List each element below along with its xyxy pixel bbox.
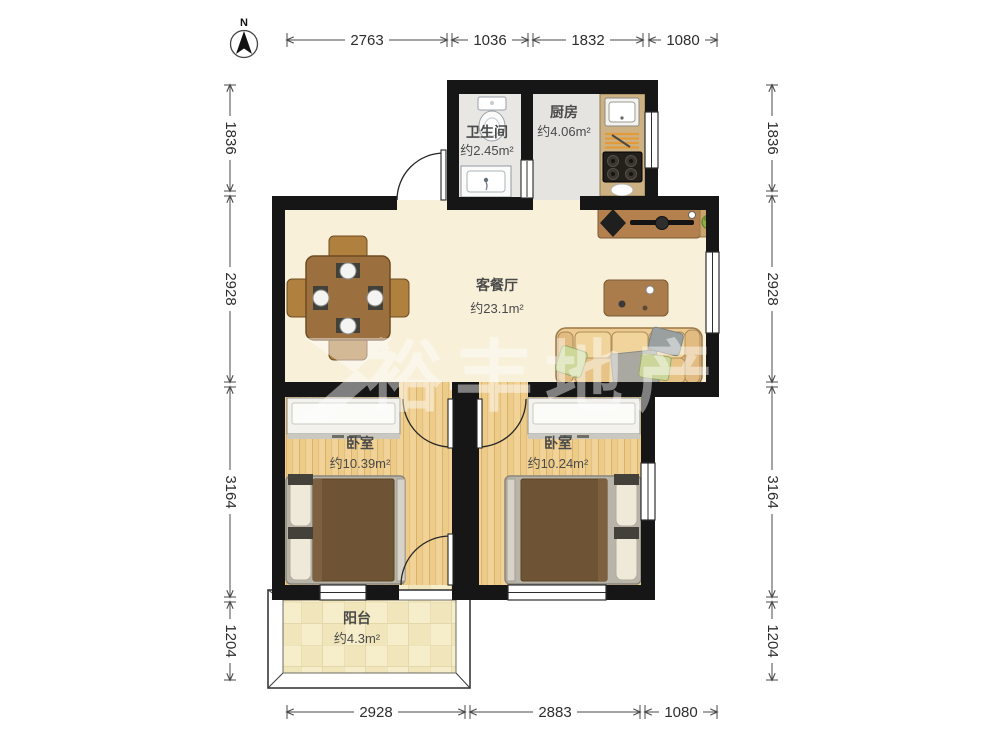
bedroom-right-side-window (641, 463, 655, 520)
dim-top-1: 1036 (452, 32, 528, 49)
living-label: 客餐厅 (475, 277, 518, 293)
burner-center (629, 172, 633, 176)
north-label: N (240, 17, 248, 29)
kitchen-window (645, 112, 658, 168)
svg-text:1836: 1836 (222, 121, 239, 154)
living-area: 约23.1m² (470, 301, 524, 316)
plate (367, 290, 383, 306)
headboard-cushion (614, 527, 639, 539)
svg-text:3164: 3164 (222, 475, 239, 508)
dim-top-3: 1080 (649, 32, 717, 49)
balcony-label: 阳台 (343, 610, 371, 626)
bed-blanket-fold (598, 479, 607, 581)
plate (313, 290, 329, 306)
svg-text:2928: 2928 (222, 272, 239, 305)
plate (340, 318, 356, 334)
table-item (643, 306, 648, 311)
wall-left-exterior (272, 196, 285, 600)
svg-text:1836: 1836 (764, 121, 781, 154)
wall-living-right-upper (706, 196, 719, 252)
faucet-icon (484, 178, 488, 182)
headboard-cushion (614, 474, 639, 485)
living-room-window (706, 252, 719, 333)
coffee-table-top (604, 280, 668, 316)
pillow (290, 535, 311, 580)
bathroom-label: 卫生间 (466, 124, 508, 140)
balcony-area: 约4.3m² (334, 631, 381, 646)
cup (646, 286, 654, 294)
wall-bathroom-bottom (447, 197, 521, 210)
dim-bottom-1: 2883 (470, 704, 640, 721)
console-knob (689, 212, 696, 219)
wall-kitchen-right-upper (645, 94, 658, 112)
svg-text:1080: 1080 (664, 704, 697, 721)
entry-door (397, 150, 446, 200)
svg-text:1036: 1036 (473, 32, 506, 49)
wardrobe-handle (577, 435, 589, 438)
bedroom-right-label: 卧室 (544, 435, 572, 451)
bedroom-right-area: 约10.24m² (528, 456, 589, 471)
dim-bottom-2: 1080 (645, 704, 717, 721)
floorplan-drawing: 卫生间 约2.45m² 厨房 约4.06m² 客餐厅 约23.1m² 卧室 约1… (0, 0, 1000, 750)
dim-left-0: 1836 (222, 85, 239, 191)
dim-right-1: 2928 (764, 196, 781, 382)
tv-console (598, 208, 718, 238)
pillow (290, 481, 311, 526)
dim-right-2: 3164 (764, 387, 781, 597)
bed-blanket-fold (313, 479, 322, 581)
svg-text:2928: 2928 (764, 272, 781, 305)
dim-left-1: 2928 (222, 196, 239, 382)
pillow (616, 535, 637, 580)
dimensions-top: 2763 1036 1832 1080 (287, 32, 717, 49)
dim-right-3: 1204 (764, 602, 781, 680)
bedroom-right-window (508, 585, 606, 600)
bed-blanket (313, 479, 394, 581)
kitchen-counter (600, 94, 645, 196)
svg-text:1204: 1204 (222, 624, 239, 657)
tv-stand (656, 217, 669, 230)
wall-bathroom-left (447, 94, 459, 210)
wall-bathroom-right-lower (521, 197, 533, 210)
north-compass: N (231, 17, 258, 58)
pillow (616, 481, 637, 526)
wall-bottom-4 (606, 585, 655, 600)
dim-bottom-0: 2928 (287, 704, 465, 721)
wall-bottom-2 (366, 585, 399, 600)
bedroom-left-label: 卧室 (346, 435, 374, 451)
wall-bottom-1 (272, 585, 320, 600)
dim-right-0: 1836 (764, 85, 781, 191)
svg-text:2928: 2928 (359, 704, 392, 721)
svg-text:2763: 2763 (350, 32, 383, 49)
bed-foot-bench (397, 479, 405, 581)
bedroom-left-window (320, 585, 366, 600)
dim-left-2: 3164 (222, 387, 239, 597)
dim-top-2: 1832 (533, 32, 643, 49)
bed-right (505, 474, 641, 584)
dim-top-0: 2763 (287, 32, 447, 49)
headboard-cushion (288, 527, 313, 539)
coffee-table (604, 280, 668, 316)
kitchen-label: 厨房 (550, 104, 578, 120)
serving-plate (611, 184, 633, 196)
wardrobe-handle (332, 435, 344, 438)
bathroom-area: 约2.45m² (460, 143, 514, 158)
table-item (619, 301, 626, 308)
svg-text:1832: 1832 (571, 32, 604, 49)
svg-text:2883: 2883 (538, 704, 571, 721)
svg-text:1204: 1204 (764, 624, 781, 657)
bedroom-left-area: 约10.39m² (330, 456, 391, 471)
dimensions-left: 1836 2928 3164 1204 (222, 85, 239, 680)
dimensions-right: 1836 2928 3164 1204 (764, 85, 781, 680)
headboard-cushion (288, 474, 313, 485)
bed-blanket (521, 479, 607, 581)
plate (340, 263, 356, 279)
burner-center (611, 159, 615, 163)
burner-center (629, 159, 633, 163)
toilet-button (490, 101, 494, 105)
floorplan-page: 卫生间 约2.45m² 厨房 约4.06m² 客餐厅 约23.1m² 卧室 约1… (0, 0, 1000, 750)
bed-foot-bench (507, 479, 515, 581)
sink-drain (620, 116, 623, 119)
wall-living-top-left (272, 196, 397, 210)
dim-left-3: 1204 (222, 602, 239, 680)
dimensions-bottom: 2928 2883 1080 (287, 704, 717, 721)
svg-text:3164: 3164 (764, 475, 781, 508)
watermark-text: 裕丰地产 (365, 333, 725, 421)
svg-text:1080: 1080 (666, 32, 699, 49)
wall-bathroom-right-upper (521, 94, 533, 160)
bathroom-sliding-door (521, 160, 533, 198)
wall-top-exterior (447, 80, 658, 94)
wall-bottom-3 (452, 585, 508, 600)
kitchen-area: 约4.06m² (537, 124, 591, 139)
bed-left (286, 474, 405, 584)
burner-center (611, 172, 615, 176)
